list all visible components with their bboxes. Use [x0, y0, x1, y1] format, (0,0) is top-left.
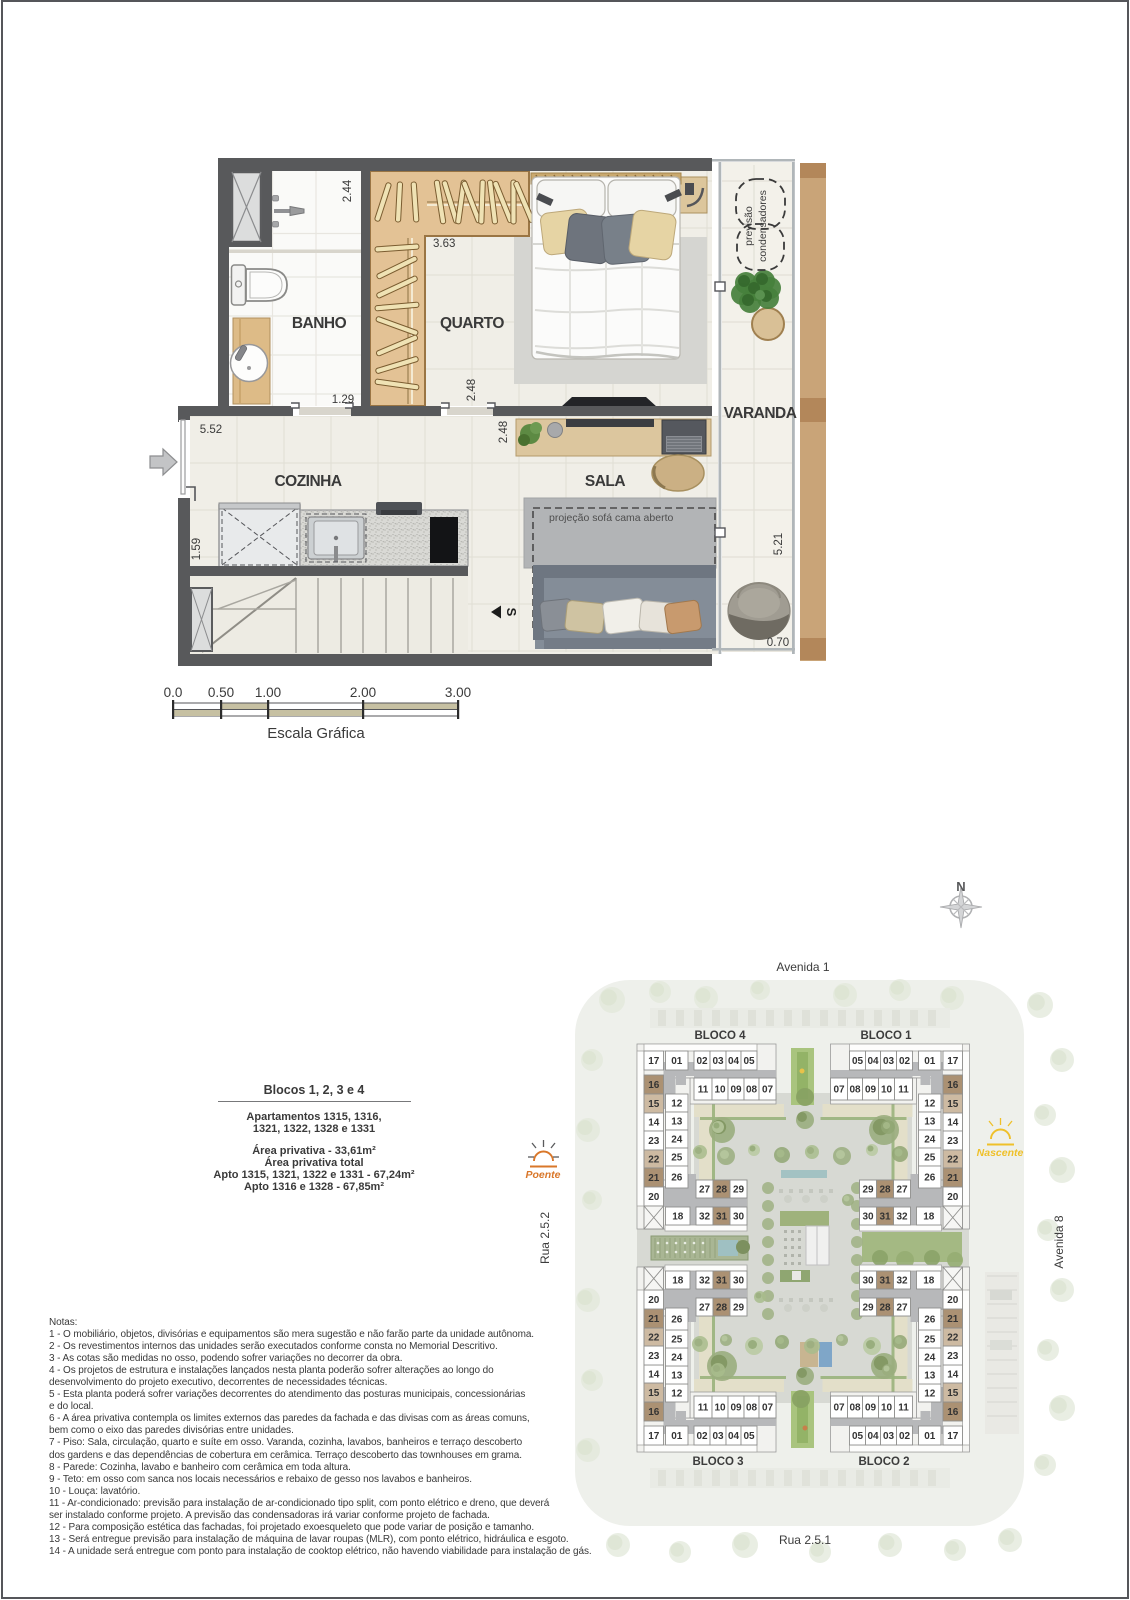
svg-text:11: 11: [898, 1402, 909, 1413]
svg-text:28: 28: [879, 1184, 891, 1195]
svg-text:32: 32: [699, 1275, 711, 1286]
svg-text:10: 10: [714, 1402, 726, 1413]
svg-text:13: 13: [924, 1370, 936, 1381]
svg-text:17: 17: [648, 1056, 660, 1067]
svg-text:08: 08: [849, 1402, 861, 1413]
svg-text:07: 07: [762, 1402, 774, 1413]
svg-text:24: 24: [671, 1352, 683, 1363]
svg-text:12: 12: [924, 1388, 936, 1399]
svg-text:12: 12: [671, 1098, 683, 1109]
svg-text:03: 03: [883, 1056, 895, 1067]
svg-text:12: 12: [671, 1388, 683, 1399]
svg-text:24: 24: [924, 1134, 936, 1145]
svg-text:09: 09: [865, 1402, 877, 1413]
svg-text:Poente: Poente: [525, 1169, 560, 1181]
svg-text:05: 05: [852, 1431, 864, 1442]
svg-text:0.70: 0.70: [767, 637, 789, 649]
svg-text:07: 07: [762, 1084, 774, 1095]
svg-text:18: 18: [923, 1211, 935, 1222]
svg-text:16: 16: [947, 1407, 959, 1418]
svg-text:22: 22: [648, 1154, 660, 1165]
svg-text:22: 22: [947, 1332, 959, 1343]
svg-text:21: 21: [648, 1173, 660, 1184]
svg-text:2.44: 2.44: [342, 179, 354, 202]
svg-text:03: 03: [712, 1431, 724, 1442]
svg-text:05: 05: [743, 1431, 755, 1442]
svg-text:02: 02: [696, 1056, 708, 1067]
svg-text:13: 13: [671, 1116, 683, 1127]
svg-text:10: 10: [881, 1084, 893, 1095]
svg-text:BLOCO 1: BLOCO 1: [860, 1030, 912, 1042]
svg-text:5.52: 5.52: [200, 424, 222, 436]
svg-text:30: 30: [862, 1275, 874, 1286]
svg-text:21: 21: [947, 1314, 959, 1325]
svg-text:18: 18: [672, 1211, 684, 1222]
svg-text:32: 32: [896, 1211, 908, 1222]
svg-text:29: 29: [862, 1302, 874, 1313]
svg-text:03: 03: [883, 1431, 895, 1442]
svg-text:18: 18: [923, 1275, 935, 1286]
svg-text:08: 08: [849, 1084, 861, 1095]
svg-text:07: 07: [833, 1084, 845, 1095]
svg-text:S: S: [504, 608, 519, 617]
svg-text:20: 20: [648, 1192, 660, 1203]
svg-text:03: 03: [712, 1056, 724, 1067]
svg-text:11: 11: [698, 1084, 709, 1095]
svg-text:27: 27: [896, 1184, 908, 1195]
svg-text:31: 31: [879, 1211, 891, 1222]
svg-text:2.00: 2.00: [350, 685, 376, 700]
svg-text:28: 28: [879, 1302, 891, 1313]
svg-text:10: 10: [881, 1402, 893, 1413]
svg-text:09: 09: [865, 1084, 877, 1095]
svg-text:27: 27: [896, 1302, 908, 1313]
svg-text:04: 04: [728, 1431, 740, 1442]
svg-text:09: 09: [730, 1084, 742, 1095]
svg-text:16: 16: [648, 1407, 660, 1418]
svg-text:05: 05: [743, 1056, 755, 1067]
svg-text:VARANDA: VARANDA: [724, 405, 797, 422]
svg-text:11: 11: [698, 1402, 709, 1413]
svg-text:5.21: 5.21: [773, 533, 785, 555]
svg-text:16: 16: [648, 1080, 660, 1091]
svg-text:25: 25: [671, 1334, 683, 1345]
svg-text:previsão: previsão: [743, 206, 755, 246]
svg-text:11: 11: [898, 1084, 909, 1095]
svg-text:2.48: 2.48: [466, 379, 478, 401]
svg-text:QUARTO: QUARTO: [440, 315, 504, 332]
svg-text:27: 27: [699, 1184, 711, 1195]
svg-text:Escala Gráfica: Escala Gráfica: [267, 725, 365, 742]
svg-text:14: 14: [947, 1369, 959, 1380]
svg-text:02: 02: [899, 1056, 911, 1067]
svg-text:1.00: 1.00: [255, 685, 281, 700]
svg-text:23: 23: [648, 1136, 660, 1147]
svg-text:15: 15: [947, 1388, 959, 1399]
svg-text:04: 04: [867, 1056, 879, 1067]
svg-text:0.50: 0.50: [208, 685, 234, 700]
svg-text:25: 25: [924, 1334, 936, 1345]
svg-text:17: 17: [947, 1056, 959, 1067]
svg-text:24: 24: [924, 1352, 936, 1363]
svg-text:1.29: 1.29: [332, 394, 354, 406]
svg-text:28: 28: [716, 1302, 728, 1313]
svg-text:31: 31: [879, 1275, 891, 1286]
svg-text:22: 22: [648, 1332, 660, 1343]
svg-text:26: 26: [671, 1172, 683, 1183]
svg-text:26: 26: [924, 1172, 936, 1183]
svg-text:12: 12: [924, 1098, 936, 1109]
svg-text:BLOCO 3: BLOCO 3: [692, 1456, 743, 1468]
svg-text:20: 20: [947, 1192, 959, 1203]
svg-text:09: 09: [730, 1402, 742, 1413]
svg-text:Avenida 8: Avenida 8: [1052, 1215, 1066, 1268]
svg-text:14: 14: [648, 1117, 660, 1128]
svg-text:N: N: [956, 879, 965, 894]
svg-text:13: 13: [924, 1116, 936, 1127]
svg-text:25: 25: [671, 1152, 683, 1163]
svg-text:22: 22: [947, 1154, 959, 1165]
svg-text:Rua 2.5.2: Rua 2.5.2: [538, 1212, 552, 1264]
svg-text:23: 23: [947, 1351, 959, 1362]
svg-text:28: 28: [716, 1184, 728, 1195]
svg-text:32: 32: [699, 1211, 711, 1222]
svg-text:0.0: 0.0: [164, 685, 183, 700]
svg-text:27: 27: [699, 1302, 711, 1313]
svg-text:29: 29: [733, 1302, 745, 1313]
svg-text:10: 10: [714, 1084, 726, 1095]
svg-text:25: 25: [924, 1152, 936, 1163]
svg-text:01: 01: [671, 1431, 683, 1442]
svg-text:31: 31: [716, 1211, 728, 1222]
svg-text:01: 01: [924, 1056, 936, 1067]
svg-text:15: 15: [947, 1099, 959, 1110]
svg-text:Rua 2.5.1: Rua 2.5.1: [779, 1533, 831, 1547]
svg-text:3.63: 3.63: [433, 238, 455, 250]
svg-text:15: 15: [648, 1388, 660, 1399]
svg-text:Nascente: Nascente: [977, 1147, 1024, 1159]
svg-text:02: 02: [696, 1431, 708, 1442]
svg-text:30: 30: [862, 1211, 874, 1222]
svg-text:COZINHA: COZINHA: [274, 473, 341, 490]
svg-text:projeção sofá cama aberto: projeção sofá cama aberto: [549, 512, 673, 524]
svg-text:31: 31: [716, 1275, 728, 1286]
svg-text:30: 30: [733, 1275, 745, 1286]
svg-text:04: 04: [867, 1431, 879, 1442]
svg-text:BANHO: BANHO: [292, 315, 347, 332]
svg-text:04: 04: [728, 1056, 740, 1067]
svg-text:08: 08: [746, 1084, 758, 1095]
svg-text:21: 21: [648, 1314, 660, 1325]
svg-text:18: 18: [672, 1275, 684, 1286]
svg-text:Avenida 1: Avenida 1: [776, 960, 829, 974]
svg-text:30: 30: [733, 1211, 745, 1222]
svg-text:26: 26: [924, 1314, 936, 1325]
svg-text:01: 01: [924, 1431, 936, 1442]
svg-text:29: 29: [733, 1184, 745, 1195]
svg-text:condensadores: condensadores: [757, 190, 769, 262]
svg-text:BLOCO 2: BLOCO 2: [858, 1456, 909, 1468]
svg-text:20: 20: [947, 1295, 959, 1306]
svg-text:26: 26: [671, 1314, 683, 1325]
svg-text:BLOCO 4: BLOCO 4: [694, 1030, 746, 1042]
svg-text:SALA: SALA: [585, 473, 626, 490]
svg-text:23: 23: [648, 1351, 660, 1362]
svg-text:1.59: 1.59: [191, 538, 203, 560]
svg-text:15: 15: [648, 1099, 660, 1110]
svg-text:29: 29: [862, 1184, 874, 1195]
svg-text:13: 13: [671, 1370, 683, 1381]
svg-text:2.48: 2.48: [498, 421, 510, 443]
svg-text:3.00: 3.00: [445, 685, 471, 700]
svg-text:14: 14: [947, 1117, 959, 1128]
svg-text:02: 02: [899, 1431, 911, 1442]
svg-text:01: 01: [671, 1056, 683, 1067]
svg-text:08: 08: [746, 1402, 758, 1413]
svg-text:14: 14: [648, 1369, 660, 1380]
svg-text:17: 17: [947, 1431, 959, 1442]
svg-text:05: 05: [852, 1056, 864, 1067]
svg-text:20: 20: [648, 1295, 660, 1306]
svg-text:21: 21: [947, 1173, 959, 1184]
svg-text:16: 16: [947, 1080, 959, 1091]
svg-text:23: 23: [947, 1136, 959, 1147]
svg-text:32: 32: [896, 1275, 908, 1286]
svg-text:17: 17: [648, 1431, 660, 1442]
svg-text:07: 07: [833, 1402, 845, 1413]
svg-text:24: 24: [671, 1134, 683, 1145]
